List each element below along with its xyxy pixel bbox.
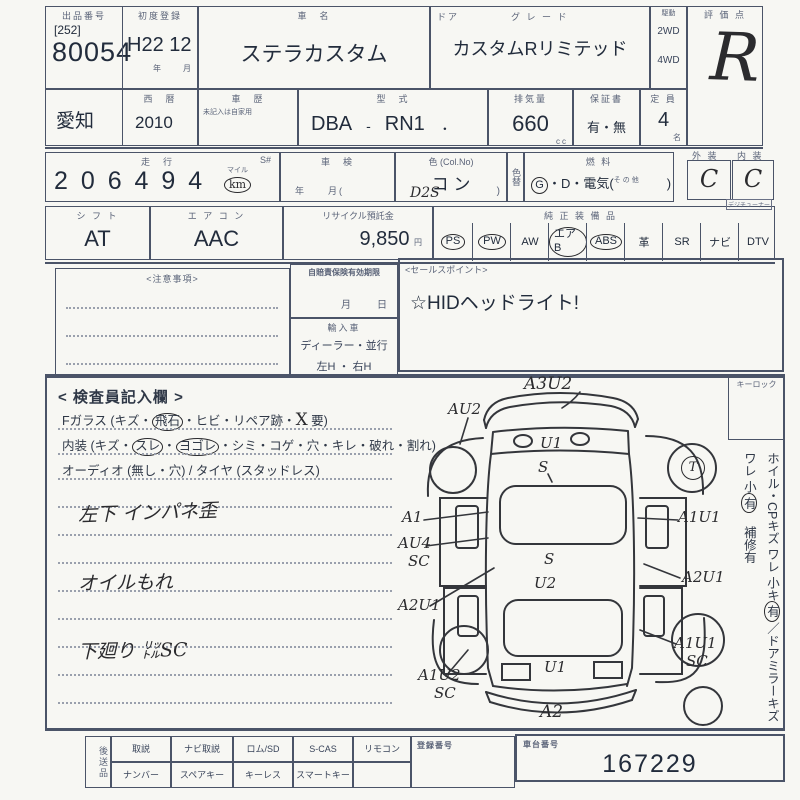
history-note: 未記入は自家用 xyxy=(203,107,297,117)
history-cell: 車 歴 未記入は自家用 xyxy=(198,89,298,146)
drive-cell: 駆動 2WD 4WD xyxy=(650,6,687,89)
inspector-title: < 検査員記入欄 > xyxy=(58,386,184,407)
mileage-value: 2 0 6 4 9 4 xyxy=(54,167,205,196)
code-rear-bumper: A2 xyxy=(540,702,563,722)
shift-cell: シ フ ト AT xyxy=(45,206,150,260)
code-left-rear-door: A2U1 xyxy=(398,596,441,614)
handwritten-note-1: 左下 インパネ歪 xyxy=(78,496,218,528)
caution-notes-label: <注意事項> xyxy=(56,272,289,285)
warranty-value: 有・無 xyxy=(574,117,639,136)
equip-sunroof: SR xyxy=(662,223,701,261)
fuel-other-label: その他 xyxy=(614,177,641,184)
inspector-line-audio-tire: オーディオ (無し・穴) / タイヤ (スタッドレス) xyxy=(62,460,320,479)
import-handle: 左H ・ 右H xyxy=(291,358,397,374)
first-registration-value: H22 12 xyxy=(127,34,197,57)
code-right-front-door: A1U1 xyxy=(678,508,721,526)
history-label: 車 歴 xyxy=(199,92,297,105)
chassis-number-box: 車台番号 167229 xyxy=(515,734,785,782)
sales-point-label: <セールスポイント> xyxy=(405,263,488,276)
code-roof-1: S xyxy=(544,550,554,568)
import-box: 輸入車 ディーラー・並行 左H ・ 右H xyxy=(290,318,398,376)
car-name: ステラカスタム xyxy=(199,38,429,68)
first-registration-label: 初度登録 xyxy=(123,9,197,22)
sales-point-text: ☆HIDヘッドライト! xyxy=(410,288,782,315)
insurance-units: 月 日 xyxy=(291,296,389,311)
code-right-rear-door: A2U1 xyxy=(682,568,725,586)
equip-navi: ナビ xyxy=(700,223,739,261)
divider-4 xyxy=(45,729,785,731)
car-damage-diagram: A3U2 AU2 U1 S T A1 AU4 SC A2U1 S U2 A1U1… xyxy=(398,378,733,728)
registration-number-label: 登録番号 xyxy=(417,740,453,751)
prefecture-cell: 愛知 xyxy=(45,89,123,146)
chassis-number: 167229 xyxy=(517,750,783,779)
fuel-gasoline-circled: G xyxy=(531,177,548,194)
accessory-navi-manual: ナビ取説 xyxy=(171,736,233,762)
recycle-fee-value: 9,850 xyxy=(359,228,409,250)
code-left-rear-fender-2: SC xyxy=(434,684,456,702)
car-name-label: 車 名 xyxy=(199,9,429,22)
handwritten-note-3: 下廻り ㍑SC xyxy=(78,635,188,664)
warranty-label: 保証書 xyxy=(574,92,639,105)
code-left-front-door: A1 xyxy=(402,508,422,526)
mileage-cell: 走 行 S# 2 0 6 4 9 4 マイル km xyxy=(45,152,280,202)
km-unit-circled: km xyxy=(224,177,251,193)
auction-sheet: 出品番号 [252] 80054 初度登録 H22 12 年 月 車 名 ステラ… xyxy=(0,0,800,800)
interior-grade: C xyxy=(733,165,773,193)
auction-number-label: 出品番号 xyxy=(46,9,122,22)
aircon-label: エ ア コ ン xyxy=(151,209,282,222)
fglass-x-mark: X xyxy=(296,410,308,430)
side-damage-note: ホイル・CPキズ ワレ 小キ有／ドアミラーキズ ワレ 小有 補修有 xyxy=(733,452,783,724)
chassis-number-label: 車台番号 xyxy=(523,739,559,750)
equip-abs: ABS xyxy=(586,223,625,261)
drive-label: 駆動 xyxy=(651,8,686,18)
calendar-label: 西 暦 xyxy=(123,92,197,105)
equip-airbag: エアB xyxy=(548,223,587,261)
equip-dtv: DTV xyxy=(738,223,777,261)
accessory-rom-sd: ロム/SD xyxy=(233,736,293,762)
recycle-fee-cell: リサイクル預託金 9,850 円 xyxy=(283,206,433,260)
capacity-unit: 名 xyxy=(641,132,683,143)
auction-number-cell: 出品番号 [252] 80054 xyxy=(45,6,123,89)
shift-label: シ フ ト xyxy=(46,209,149,222)
accessory-remote: リモコン xyxy=(353,736,411,762)
wheel-damage-note: ホイル・CPキズ ワレ 小キ xyxy=(765,452,779,601)
model-code: RN1 xyxy=(385,113,425,137)
repair-note: 補修有 xyxy=(742,526,756,564)
caution-notes-box: <注意事項> xyxy=(55,268,290,376)
accessory-scas: S-CAS xyxy=(293,736,353,762)
color-label: 色 (Col.No) xyxy=(396,155,506,168)
capacity-cell: 定 員 4 名 xyxy=(640,89,687,146)
accessory-smart-key: スマートキー xyxy=(293,762,353,788)
fuel-label: 燃 料 xyxy=(525,155,673,168)
code-right-rear-fender-2: SC xyxy=(686,652,708,670)
color-paren-close: ) xyxy=(497,186,502,197)
auction-lane: [252] xyxy=(54,23,122,37)
code-left-rear-fender-1: A1U2 xyxy=(418,666,461,684)
exterior-grade: C xyxy=(688,165,730,193)
import-type: ディーラー・並行 xyxy=(291,337,397,353)
handwritten-note-2: オイルもれ xyxy=(78,567,173,596)
code-left-front-fender: AU2 xyxy=(448,400,481,418)
wheel-damage-yes-circled: 有 xyxy=(764,601,780,622)
import-label: 輸入車 xyxy=(291,321,397,334)
shift-value: AT xyxy=(46,226,149,252)
accessory-number-plate: ナンバー xyxy=(111,762,171,788)
prefecture: 愛知 xyxy=(56,106,122,133)
drive-2wd: 2WD xyxy=(651,26,686,37)
code-roof-2: U2 xyxy=(534,574,556,592)
code-hood-1: U1 xyxy=(540,434,562,452)
displacement-value: 660 xyxy=(489,111,572,137)
insurance-box: 自賠責保険有効期限 月 日 xyxy=(290,264,398,318)
first-registration-units: 年 月 xyxy=(123,63,193,74)
tuner-note-label: デジチューナー xyxy=(726,199,772,210)
shaken-units: 年 月( xyxy=(295,184,344,197)
grade-cell: ドア グ レ ー ド カスタムRリミテッド xyxy=(430,6,650,89)
s-number-label: S# xyxy=(260,155,271,165)
fuel-options: ・D・電気( xyxy=(548,176,614,191)
mirror-damage-yes-circled: 有 xyxy=(741,493,757,514)
exterior-grade-box: C xyxy=(687,160,731,200)
accessory-keyless: キーレス xyxy=(233,762,293,788)
code-right-rear-fender-1: A1U1 xyxy=(674,634,717,652)
grade-label: グ レ ー ド xyxy=(511,10,569,23)
displacement-unit: cc xyxy=(489,137,568,146)
equip-pw: PW xyxy=(472,223,511,261)
fuel-paren-close: ) xyxy=(667,176,671,191)
model-cell: 型 式 DBA - RN1 ・ xyxy=(298,89,488,146)
equipment-label: 純 正 装 備 品 xyxy=(544,209,617,222)
equip-aw: AW xyxy=(510,223,549,261)
drive-4wd: 4WD xyxy=(651,55,686,66)
first-registration-cell: 初度登録 H22 12 年 月 xyxy=(122,6,198,89)
code-hood-2: S xyxy=(538,458,548,476)
recycle-fee-unit: 円 xyxy=(414,238,424,247)
auction-number: 80054 xyxy=(52,37,122,68)
capacity-value: 4 xyxy=(641,109,686,132)
calendar-year-cell: 西 暦 2010 xyxy=(122,89,198,146)
equip-leather: 革 xyxy=(624,223,663,261)
registration-number-cell: 登録番号 xyxy=(411,736,515,788)
model-sep: - xyxy=(366,118,371,137)
code-rear-gate: U1 xyxy=(544,658,566,676)
insurance-label: 自賠責保険有効期限 xyxy=(291,267,397,278)
code-left-mid-1: AU4 xyxy=(398,534,431,552)
grade-value: カスタムRリミテッド xyxy=(431,35,649,61)
aircon-cell: エ ア コ ン AAC xyxy=(150,206,283,260)
shaken-cell: 車 検 年 月( xyxy=(280,152,395,202)
code-front-bumper: A3U2 xyxy=(524,374,572,394)
aircon-value: AAC xyxy=(151,226,282,252)
displacement-label: 排気量 xyxy=(489,92,572,105)
displacement-cell: 排気量 660 cc xyxy=(488,89,573,146)
shaken-label: 車 検 xyxy=(281,155,394,168)
calendar-year: 2010 xyxy=(135,113,197,133)
recycle-fee-label: リサイクル預託金 xyxy=(284,209,432,222)
code-right-front-wheel-circled: T xyxy=(681,456,705,480)
sales-point-box: <セールスポイント> ☆HIDヘッドライト! xyxy=(398,258,784,372)
interior-grade-box: C xyxy=(732,160,774,200)
fuel-cell: 燃 料 G・D・電気(その他) xyxy=(524,152,674,202)
color-code-handwritten: D2S xyxy=(410,185,440,201)
score-value: R xyxy=(709,18,761,97)
keylock-label: キーロック xyxy=(729,379,784,390)
code-left-mid-2: SC xyxy=(408,552,430,570)
keylock-box: キーロック xyxy=(728,376,785,440)
warranty-cell: 保証書 有・無 xyxy=(573,89,640,146)
model-label: 型 式 xyxy=(299,92,487,105)
accessory-manual: 取説 xyxy=(111,736,171,762)
capacity-label: 定 員 xyxy=(641,92,686,105)
car-name-cell: 車 名 ステラカスタム xyxy=(198,6,430,89)
equip-ps: PS xyxy=(434,223,472,261)
score-cell: 評 価 点 R xyxy=(687,6,763,146)
mile-unit-label: マイル xyxy=(224,165,251,175)
equipment-cell: 純 正 装 備 品 デジチューナー PS PW AW エアB ABS 革 SR … xyxy=(433,206,775,260)
accessories-label: 後送品 xyxy=(85,736,111,788)
color-change-label: 色替 xyxy=(507,152,524,202)
color-cell: 色 (Col.No) コ ン D2S ) xyxy=(395,152,507,202)
door-label: ドア xyxy=(437,10,459,23)
accessory-empty-cell xyxy=(353,762,411,788)
model-prefix: DBA xyxy=(311,113,352,137)
accessory-spare-key: スペアキー xyxy=(171,762,233,788)
model-dot: ・ xyxy=(439,120,451,137)
divider-1 xyxy=(45,147,763,149)
